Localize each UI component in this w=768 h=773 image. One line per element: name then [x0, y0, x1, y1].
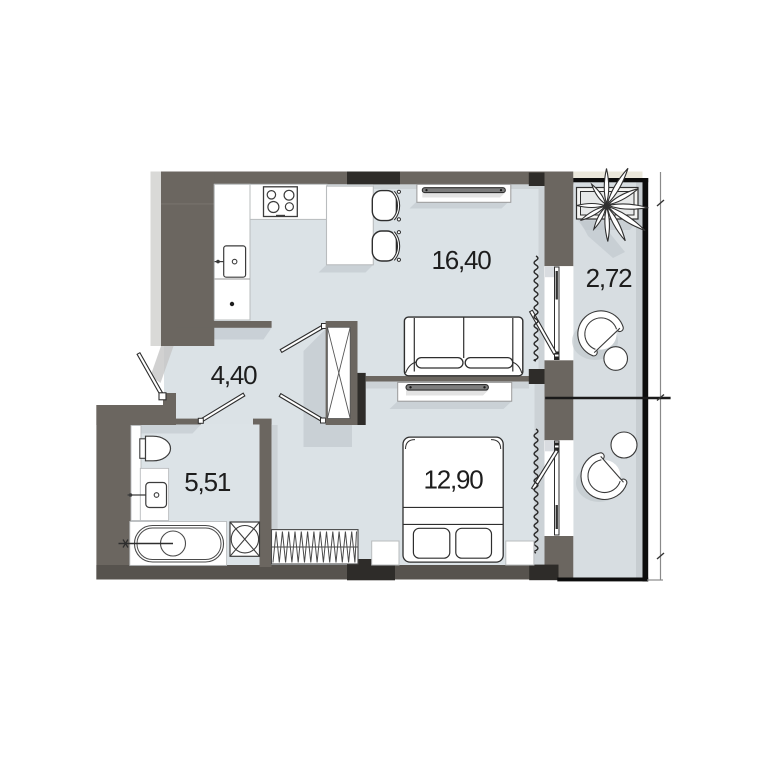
svg-text:4,40: 4,40 [211, 360, 258, 390]
svg-text:2,72: 2,72 [586, 263, 633, 293]
svg-text:16,40: 16,40 [431, 245, 491, 275]
svg-text:12,90: 12,90 [423, 465, 483, 495]
svg-text:5,51: 5,51 [184, 467, 231, 497]
